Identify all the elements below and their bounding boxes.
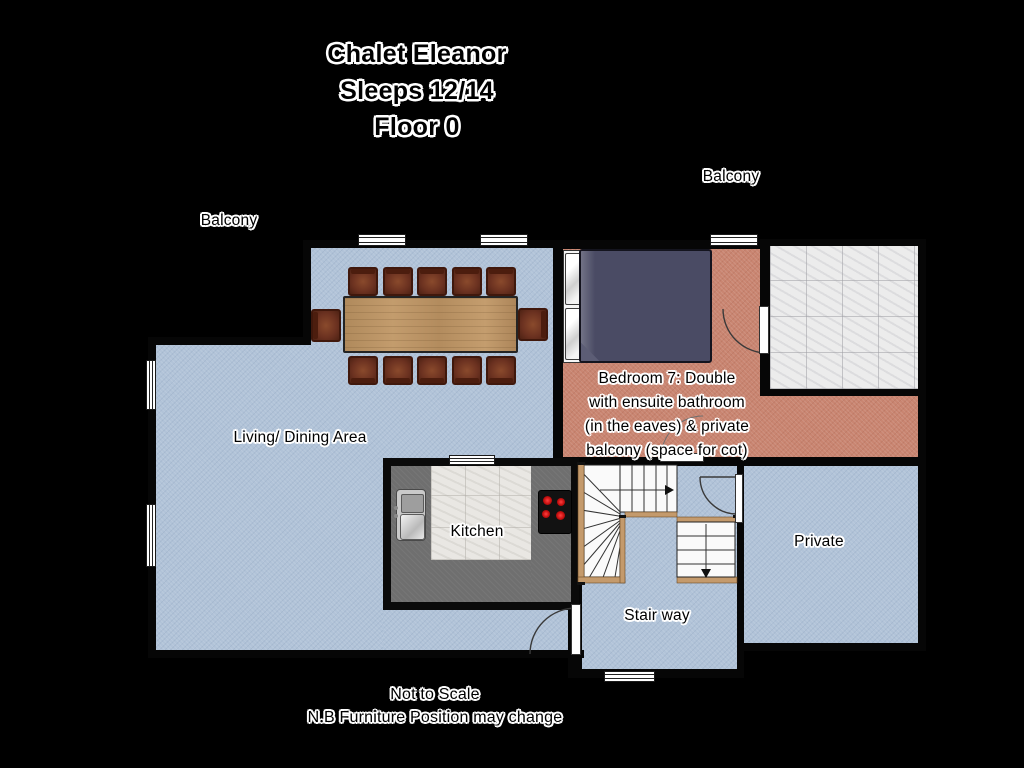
note-furniture: N.B Furniture Position may change <box>308 709 563 727</box>
floor-private <box>744 466 918 643</box>
chalet-floor: Floor 0 <box>374 113 459 142</box>
wall-right <box>918 239 926 651</box>
window-kitchen-hatch <box>449 455 495 465</box>
wall-living-bedroom <box>553 240 563 465</box>
kitchen-counter-bottom <box>431 560 531 602</box>
kitchen-floor <box>431 466 531 560</box>
floor-stairway <box>582 466 737 669</box>
window-left-upper <box>146 360 156 410</box>
dining-chair <box>417 356 447 385</box>
bed-duvet <box>579 249 712 363</box>
wall-step-top <box>148 337 311 345</box>
dining-chair <box>486 267 516 296</box>
dining-chair <box>452 356 482 385</box>
dining-chair <box>348 267 378 296</box>
dining-chair <box>383 356 413 385</box>
dining-chair <box>486 356 516 385</box>
dining-chair <box>452 267 482 296</box>
note-not-to-scale: Not to Scale <box>390 686 480 704</box>
dining-chair <box>417 267 447 296</box>
dining-chair <box>383 267 413 296</box>
balcony-tiled-floor <box>760 239 926 396</box>
floor-plan-canvas: Chalet Eleanor Sleeps 12/14 Floor 0 Balc… <box>0 0 1024 768</box>
label-living: Living/ Dining Area <box>233 429 366 447</box>
window-left-lower <box>146 504 156 567</box>
window-dining-1 <box>358 234 406 246</box>
door-bedroom-balcony <box>759 306 769 354</box>
label-bedroom7-line4: balcony (space for cot) <box>585 439 749 463</box>
wall-living-bottom <box>148 650 584 658</box>
label-bedroom7-line3: (in the eaves) & private <box>585 415 749 439</box>
label-balcony-left: Balcony <box>201 212 258 230</box>
window-stairway <box>604 671 655 682</box>
label-bedroom7-line2: with ensuite bathroom <box>585 391 749 415</box>
label-balcony-top: Balcony <box>703 168 760 186</box>
chalet-sleeps: Sleeps 12/14 <box>340 77 494 106</box>
door-private <box>735 474 743 523</box>
kitchen-counter-right <box>531 466 571 602</box>
dining-chair <box>348 356 378 385</box>
dining-chair <box>518 308 548 341</box>
window-bedroom <box>710 234 758 246</box>
sink-icon <box>396 489 426 541</box>
wall-stairway-bottom <box>568 669 744 678</box>
window-dining-2 <box>480 234 528 246</box>
chalet-title: Chalet Eleanor <box>327 40 506 69</box>
dining-chair <box>311 309 341 342</box>
wall-dining-left <box>303 240 311 345</box>
wall-private-bottom <box>737 643 926 651</box>
cooktop-icon <box>538 490 572 534</box>
label-private: Private <box>794 533 844 551</box>
dining-table <box>343 296 518 353</box>
label-kitchen: Kitchen <box>450 523 503 541</box>
label-bedroom7-line1: Bedroom 7: Double <box>585 367 749 391</box>
label-stairway: Stair way <box>624 607 690 625</box>
label-bedroom7: Bedroom 7: Double with ensuite bathroom … <box>585 367 749 463</box>
door-living-stairway <box>571 604 581 655</box>
